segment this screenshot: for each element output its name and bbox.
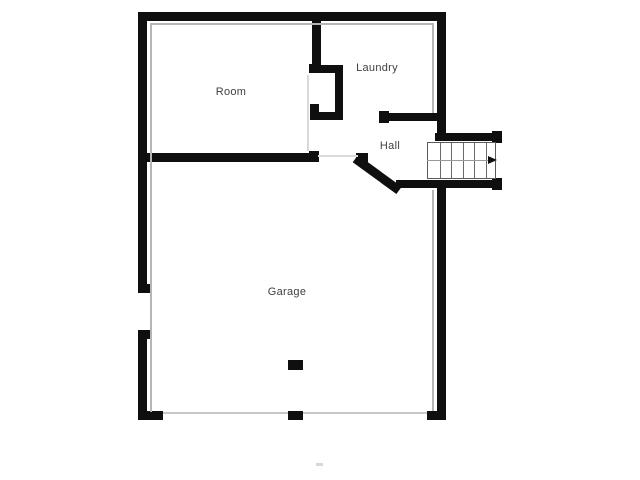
right-wall-upper [437, 12, 446, 141]
garage-center-post [288, 360, 303, 370]
right-wall-shadow-lower [432, 190, 434, 411]
laundry-south-wall-cap [379, 111, 389, 123]
hall-room-threshold [318, 155, 358, 157]
room-label-garage: Garage [268, 286, 307, 298]
right-wall-lower [437, 180, 446, 420]
top-wall-shadow [150, 23, 433, 25]
garage-front-right-stub [427, 411, 446, 420]
garage-door-line-left [163, 412, 288, 414]
hall-diagonal-wall [353, 155, 402, 194]
room-label-hall: Hall [380, 140, 400, 152]
room-label-laundry: Laundry [356, 62, 398, 74]
left-wall-lower [138, 330, 147, 420]
right-wall-shadow-upper [432, 23, 434, 113]
hall-south-wall-cap [492, 178, 502, 190]
top-wall [138, 12, 446, 21]
laundry-south-wall [380, 113, 446, 121]
room-laundry-wall [312, 12, 321, 65]
room-south-wall [138, 153, 318, 162]
left-wall-shadow [150, 23, 152, 412]
watermark-dash [316, 463, 323, 466]
garage-door-line-right [303, 412, 427, 414]
room-divider-shadow [307, 75, 309, 151]
hall-south-wall [396, 180, 502, 188]
closet-left-stub [310, 104, 319, 120]
floorplan-canvas: RoomLaundryHallGarage [0, 0, 640, 480]
garage-door-post [288, 411, 303, 420]
stair-direction-arrow-icon [488, 156, 497, 164]
room-label-room: Room [216, 86, 247, 98]
garage-front-left-stub [138, 411, 163, 420]
stair-direction-line [427, 160, 496, 161]
